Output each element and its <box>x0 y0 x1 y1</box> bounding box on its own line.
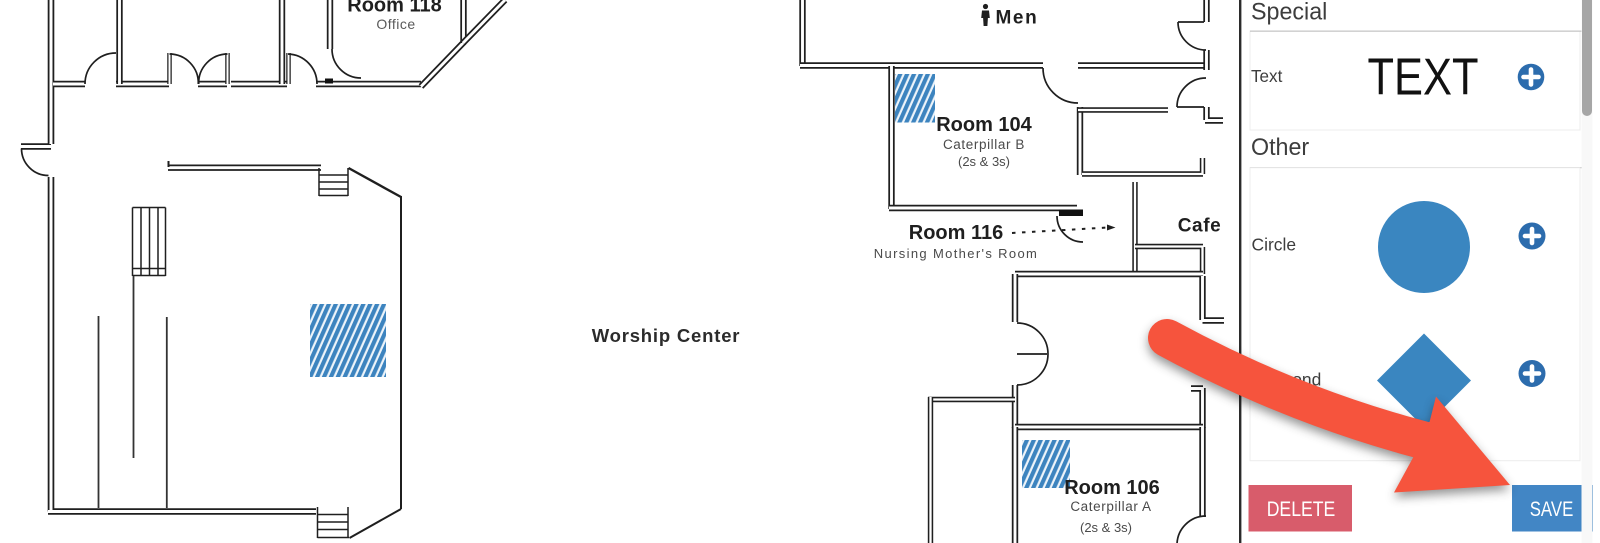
svg-text:SAVE: SAVE <box>1530 498 1574 521</box>
svg-text:DELETE: DELETE <box>1267 498 1336 522</box>
svg-text:Cafe: Cafe <box>1178 216 1222 237</box>
svg-text:Men: Men <box>996 8 1039 29</box>
svg-text:Room 106: Room 106 <box>1064 477 1160 499</box>
svg-text:Circle: Circle <box>1252 234 1297 254</box>
svg-text:Room 116: Room 116 <box>909 222 1003 244</box>
svg-text:Worship Center: Worship Center <box>592 325 741 346</box>
svg-text:Nursing Mother's Room: Nursing Mother's Room <box>874 246 1039 261</box>
svg-text:(2s & 3s): (2s & 3s) <box>958 154 1010 169</box>
svg-text:Room 118: Room 118 <box>347 0 441 17</box>
svg-text:TEXT: TEXT <box>1368 49 1479 107</box>
svg-text:Special: Special <box>1251 0 1327 25</box>
svg-text:Caterpillar B: Caterpillar B <box>943 137 1025 152</box>
svg-text:Office: Office <box>376 16 415 32</box>
svg-text:(2s & 3s): (2s & 3s) <box>1080 520 1132 535</box>
svg-text:Room 104: Room 104 <box>936 114 1032 136</box>
svg-text:Other: Other <box>1251 135 1309 161</box>
svg-text:Text: Text <box>1251 66 1282 87</box>
svg-text:Caterpillar A: Caterpillar A <box>1070 499 1151 514</box>
